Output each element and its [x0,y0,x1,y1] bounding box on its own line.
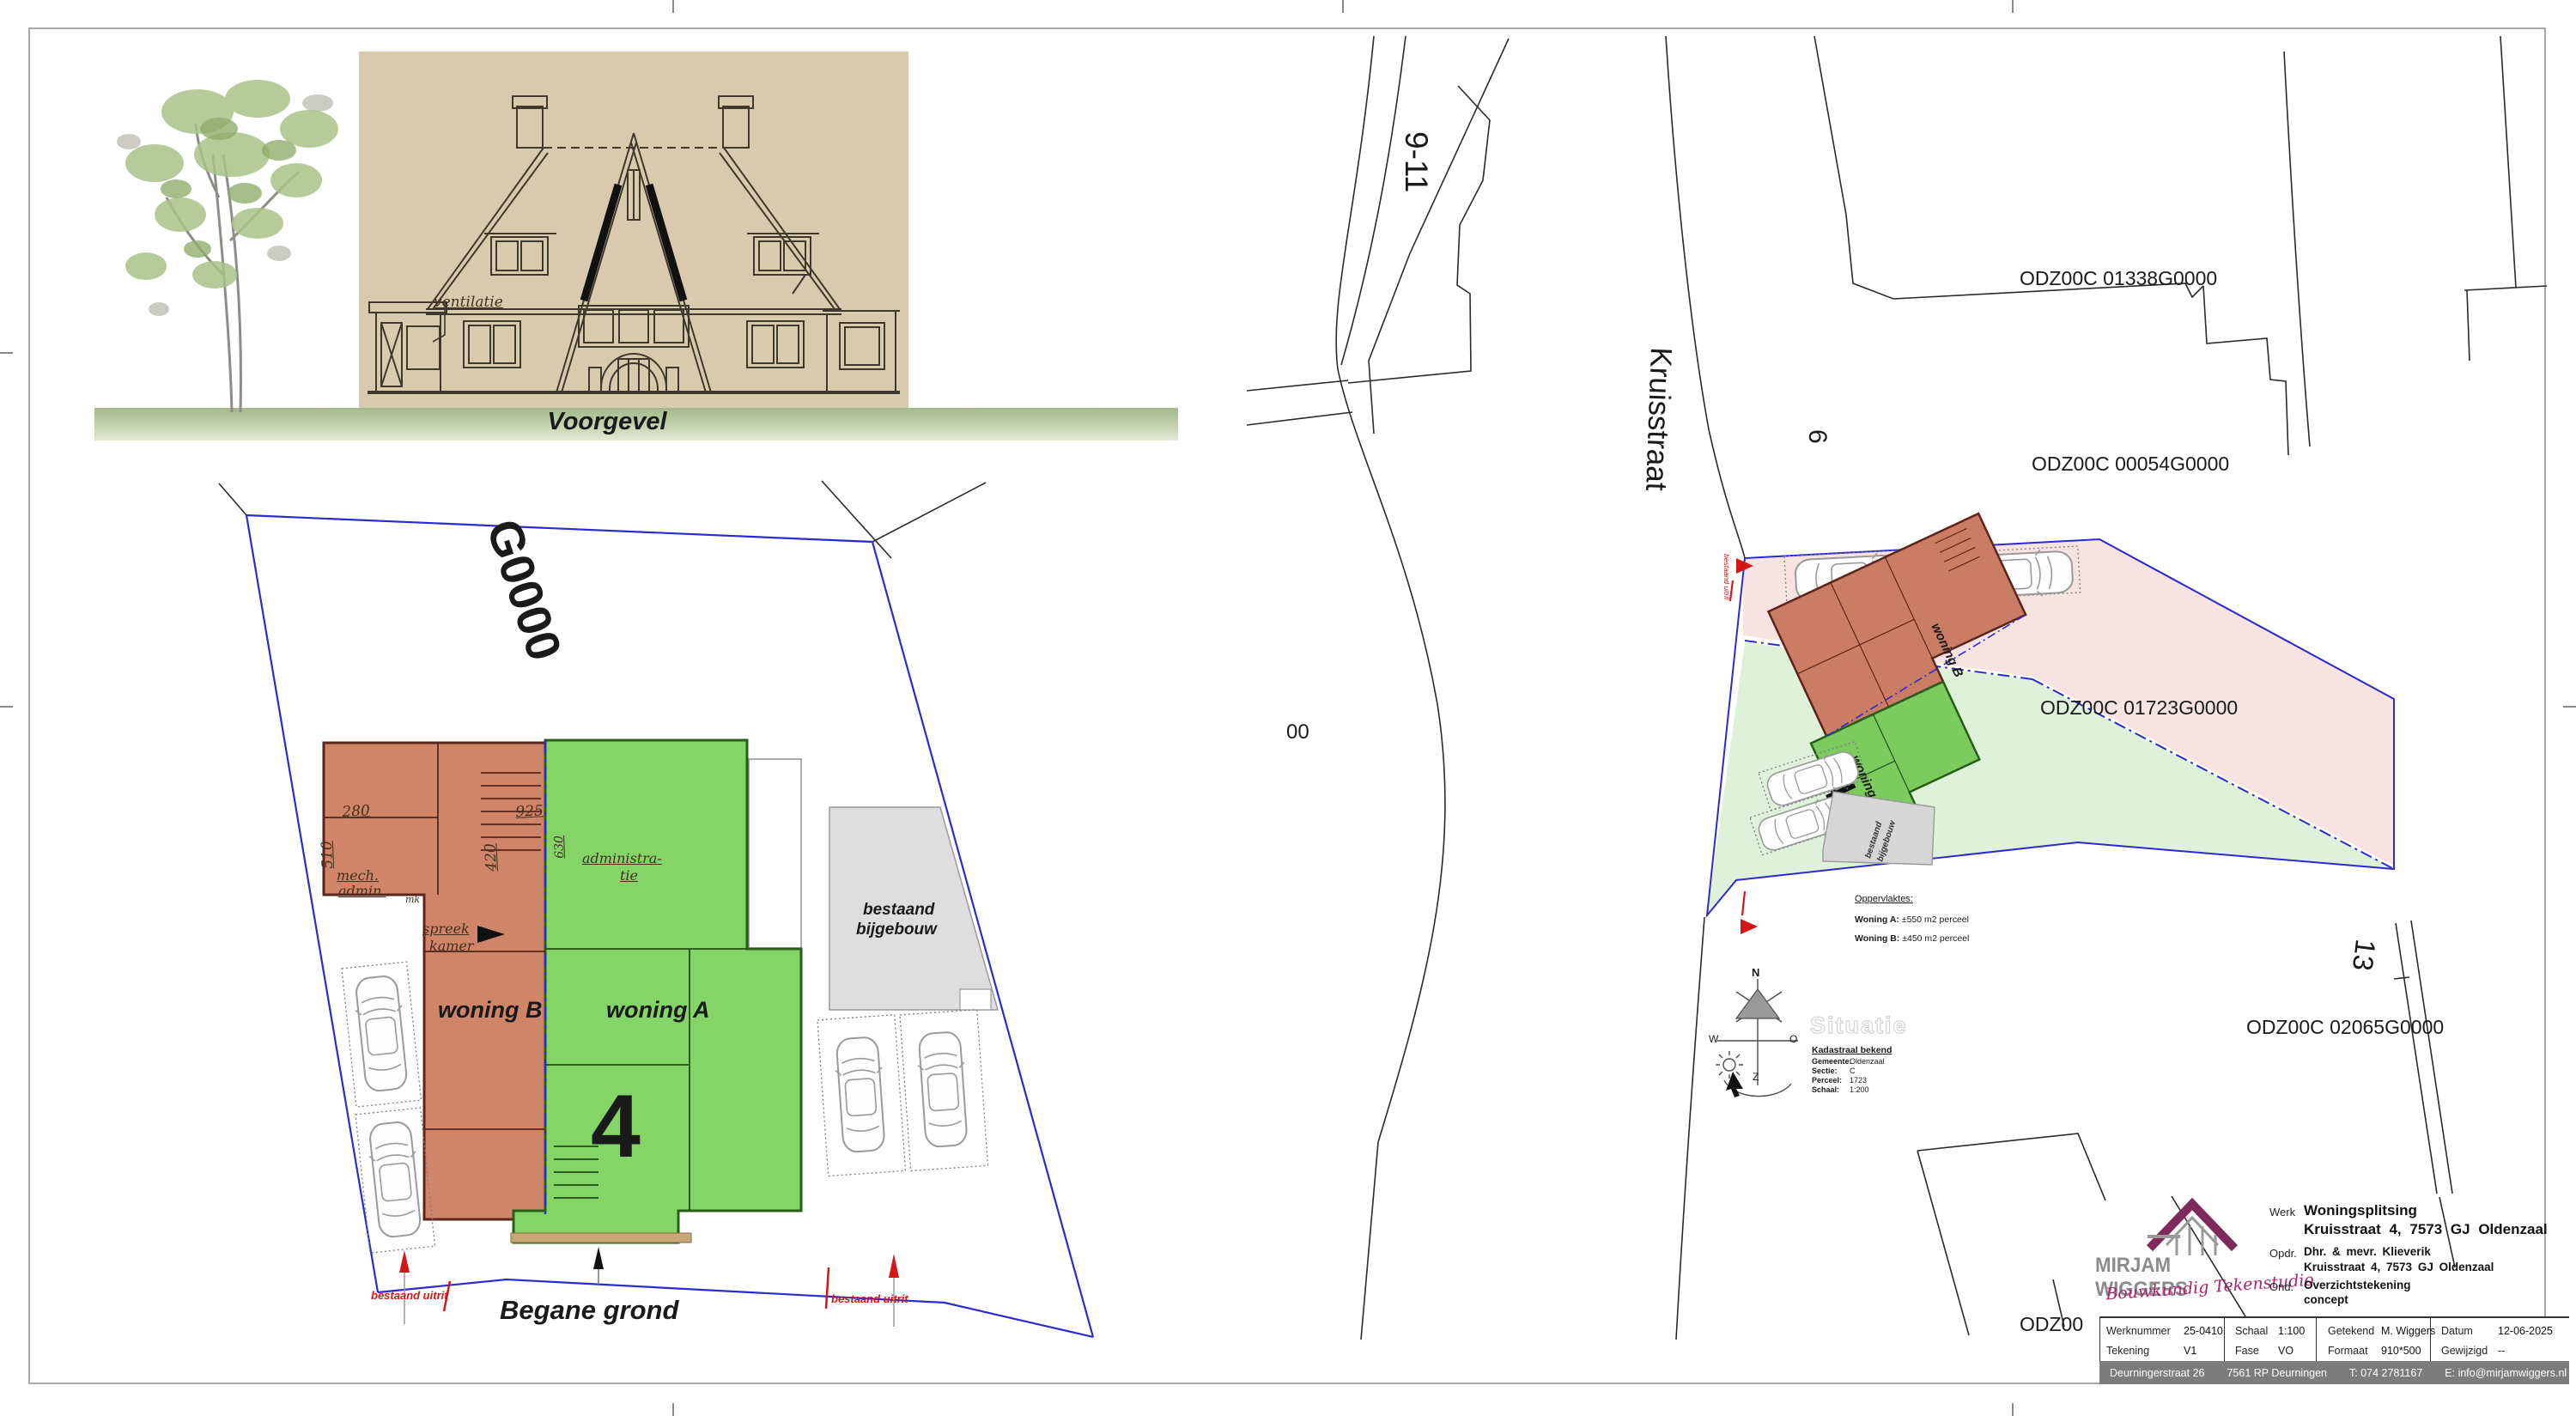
cadastral-label: Schaal: [1812,1086,1850,1094]
elevation-caption: Voorgevel [478,409,736,435]
fold-mark [672,1403,674,1416]
room-mech: mech. [337,869,379,884]
house-number-13: 13 [2347,938,2380,973]
areas-woning-b: Woning B: ±450 m2 perceel [1855,934,1969,944]
field-value: 25-0410 [2184,1325,2223,1337]
ond-label: Ond. [2269,1280,2293,1293]
dimension-925: 925 [515,804,544,821]
field-werknummer: Werknummer25-0410 [2106,1325,2223,1337]
house-number: 4 [591,1080,641,1174]
ond-value-1: Overzichtstekening [2304,1279,2411,1291]
fold-mark [0,352,13,354]
exit-label-right: bestaand uitrit [831,1293,908,1305]
dimension-280: 280 [342,804,370,821]
parcel-label-01338: ODZ00C 01338G0000 [2020,268,2217,289]
cadastral-row-sectie: Sectie:C [1812,1067,1856,1075]
elevation-annotation: ventilatie [434,295,503,311]
cadastral-value: 1:200 [1850,1085,1869,1094]
room-mk: mk [405,895,420,905]
cadastral-title: Kadastraal bekend [1812,1046,1892,1055]
fold-mark [1342,0,1344,13]
cadastral-row-gemeente: Gemeente:Oldenzaal [1812,1058,1885,1066]
room-admin: admin. [338,884,386,899]
cadastral-row-perceel: Perceel:1723 [1812,1077,1867,1085]
room-spreek: spreek [422,922,470,937]
ond-value-2: concept [2304,1293,2348,1306]
areas-title: Oppervlaktes: [1855,895,1913,905]
opdr-value-2: Kruisstraat 4, 7573 GJ Oldenzaal [2304,1261,2494,1273]
field-fase: FaseVO [2235,1345,2293,1357]
unit-a-label: woning A [606,998,709,1022]
elevation-drawing [359,52,908,408]
tree-sketch [94,52,378,421]
field-tekening: TekeningV1 [2106,1345,2196,1357]
field-value: 910*500 [2381,1345,2421,1357]
dimension-420: 420 [483,843,501,872]
situatie-watermark: Situatie [1810,1013,1908,1037]
opdr-label: Opdr. [2269,1247,2297,1260]
table-divider [2224,1318,2225,1363]
compass-o: O [1789,1034,1797,1045]
field-value: M. Wiggers [2381,1325,2435,1337]
field-value: -- [2498,1345,2505,1357]
field-label: Werknummer [2106,1325,2184,1337]
footer-address: Deurningerstraat 26 [2110,1367,2204,1379]
compass-w: W [1709,1034,1718,1045]
street-name: Kruisstraat [1639,347,1676,491]
cadastral-label: Gemeente: [1812,1058,1850,1066]
field-value: V1 [2184,1345,2196,1357]
fold-mark [2012,0,2014,13]
room-kamer: kamer [429,939,474,954]
werk-value-2: Kruisstraat 4, 7573 GJ Oldenzaal [2304,1221,2548,1238]
footer-city: 7561 RP Deurningen [2227,1367,2327,1379]
dimension-630: 630 [553,836,567,859]
werk-label: Werk [2269,1206,2295,1218]
title-block-table: Werknummer25-0410 TekeningV1 Schaal1:100… [2099,1316,2569,1361]
opdr-value-1: Dhr. & mevr. Klieverik [2304,1245,2431,1258]
cadastral-value: C [1850,1067,1856,1075]
parcel-label-02065: ODZ00C 02065G0000 [2246,1017,2444,1037]
table-divider [2316,1318,2317,1363]
dimension-510: 510 [320,841,337,869]
areas-woning-b-label: Woning B: [1855,933,1899,944]
site-exit-label: bestaand uitrit [1722,554,1731,600]
field-label: Gewijzigd [2441,1345,2498,1357]
areas-woning-a: Woning A: ±550 m2 perceel [1855,915,1969,925]
drawing-sheet: ventilatie Voorgevel [0,0,2576,1416]
field-label: Formaat [2328,1345,2381,1357]
field-formaat: Formaat910*500 [2328,1345,2421,1357]
outbuilding-label-1: bestaand [863,902,934,919]
field-label: Getekend [2328,1325,2381,1337]
field-label: Fase [2235,1345,2278,1357]
field-value: 12-06-2025 [2498,1325,2553,1337]
logo-house-icon [2142,1194,2245,1261]
room-administratie-2: tie [620,869,638,884]
room-administratie-1: administra- [582,852,662,866]
areas-woning-b-value: ±450 m2 perceel [1899,933,1969,944]
cadastral-value: Oldenzaal [1850,1057,1885,1066]
field-schaal: Schaal1:100 [2235,1325,2305,1337]
field-datum: Datum12-06-2025 [2441,1325,2553,1337]
cadastral-row-schaal: Schaal:1:200 [1812,1086,1869,1094]
parcel-label-01723: ODZ00C 01723G0000 [2040,697,2238,718]
field-getekend: GetekendM. Wiggers [2328,1325,2435,1337]
field-label: Datum [2441,1325,2498,1337]
house-number-9-11: 9-11 [1399,131,1432,192]
cadastral-value: 1723 [1850,1076,1867,1085]
outbuilding-label-2: bijgebouw [856,921,937,939]
footer-phone: T: 074 2781167 [2349,1367,2422,1379]
field-value: VO [2278,1345,2293,1357]
fold-mark [2012,1403,2014,1416]
compass-z: Z [1753,1072,1759,1083]
site-plan-drawing: woning B woning A 4 bestaand bijgebouw b… [1245,34,2576,1391]
field-value: 1:100 [2278,1325,2305,1337]
fold-mark [0,706,13,708]
field-label: Tekening [2106,1345,2184,1357]
floor-plan-drawing [232,481,1142,1365]
fold-mark [672,0,674,13]
footer-email: E: info@mirjamwiggers.nl [2445,1367,2567,1379]
field-label: Schaal [2235,1325,2278,1337]
parcel-label-partial-left: 00 [1286,721,1309,743]
field-gewijzigd: Gewijzigd-- [2441,1345,2505,1357]
floor-plan-title: Begane grond [500,1297,678,1325]
areas-woning-a-label: Woning A: [1855,915,1899,925]
cadastral-label: Sectie: [1812,1067,1850,1075]
parcel-label-partial-bottom: ODZ00 [2020,1314,2083,1334]
parcel-label-00054: ODZ00C 00054G0000 [2032,453,2229,474]
title-block: MIRJAM WIGGERS Bouwkundig Tekenstudio We… [2095,1192,2569,1386]
areas-woning-a-value: ±550 m2 perceel [1899,915,1969,925]
werk-value-1: Woningsplitsing [2304,1202,2417,1219]
cadastral-label: Perceel: [1812,1077,1850,1085]
compass-n: N [1752,967,1759,979]
exit-label-left: bestaand uitrit [371,1290,448,1302]
unit-b-label: woning B [438,998,542,1022]
house-number-6: 6 [1804,429,1832,444]
title-block-footer: Deurningerstraat 26 7561 RP Deurningen T… [2099,1361,2569,1384]
